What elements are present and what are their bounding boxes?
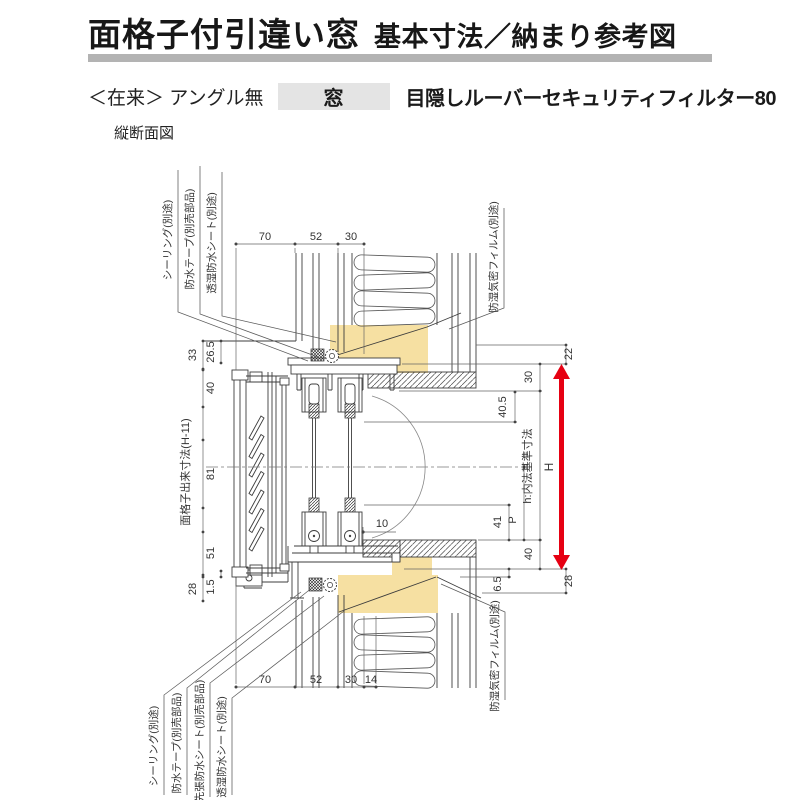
dim-right-30: 30 (523, 371, 535, 383)
dim-interior-10: 10 (376, 518, 388, 530)
label-waterproof-tape-bottom: 防水テープ(別売部品) (170, 693, 183, 794)
label-vapor-film-bottom: 防湿気密フィルム(別途) (488, 600, 501, 712)
dim-inner-height-label: h:内法基準寸法 (520, 428, 534, 503)
label-breathable-sheet-bottom: 透湿防水シート(別途) (215, 696, 228, 798)
dim-left-81: 81 (205, 468, 217, 480)
sealing-backer-top (326, 350, 339, 363)
dimension-texts: 70 52 30 70 52 30 14 33 26.5 40 81 51 1.… (178, 231, 575, 686)
label-sealing-bottom: シーリング(別途) (147, 706, 160, 787)
dim-right-22: 22 (563, 348, 575, 360)
sealing-backer-bottom (324, 579, 337, 592)
dim-bottom-30: 30 (345, 674, 357, 686)
insect-screen-rails (280, 378, 289, 571)
louver-blades (249, 416, 264, 551)
dim-top-30: 30 (345, 231, 357, 243)
dim-left-26-5: 26.5 (205, 341, 217, 362)
dim-left-1-5: 1.5 (205, 579, 217, 594)
glass-pane-2 (349, 418, 352, 498)
dim-top-52: 52 (310, 231, 322, 243)
dim-left-40: 40 (205, 382, 217, 394)
section-drawing: 70 52 30 70 52 30 14 33 26.5 40 81 51 1.… (0, 0, 800, 800)
label-vapor-film-top: 防湿気密フィルム(別途) (487, 201, 500, 313)
dim-left-33: 33 (187, 349, 199, 361)
dim-left-51: 51 (205, 547, 217, 559)
label-pre-applied-sheet-bottom: 先張防水シート(別売部品) (193, 680, 206, 800)
label-breathable-sheet-top: 透湿防水シート(別途) (205, 192, 218, 294)
label-waterproof-tape-top: 防水テープ(別売部品) (183, 189, 196, 290)
dim-right-41: 41 (492, 516, 504, 528)
catalog-page: 面格子付引違い窓 基本寸法／納まり参考図 ＜在来＞ アングル無 窓 目隠しルーバ… (0, 0, 800, 800)
insulation-batts (354, 255, 436, 689)
dim-right-28: 28 (563, 575, 575, 587)
face-grille (232, 370, 289, 577)
dim-grille-height: 面格子出来寸法(H-11) (178, 418, 192, 525)
sliding-sashes (302, 378, 362, 546)
label-sealing-top: シーリング(別途) (161, 200, 174, 281)
dim-right-P: P (507, 516, 519, 523)
dim-left-28: 28 (187, 583, 199, 595)
glass-pane-1 (313, 418, 316, 498)
dim-bottom-14: 14 (365, 674, 377, 686)
dim-top-70: 70 (259, 231, 271, 243)
reference-lines (206, 396, 528, 538)
dim-right-40: 40 (523, 548, 535, 560)
dim-bottom-52: 52 (310, 674, 322, 686)
dim-right-6-5: 6.5 (492, 576, 504, 591)
dim-right-40-5: 40.5 (497, 396, 509, 417)
dim-H: H (542, 463, 556, 472)
